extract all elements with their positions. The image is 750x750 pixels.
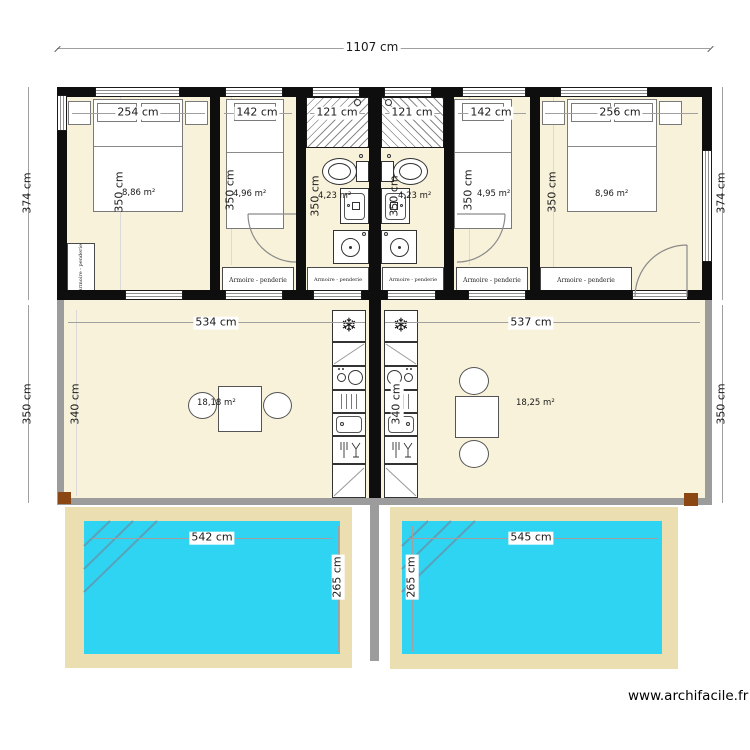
room-area-label[interactable]: 18,18 m²	[197, 398, 236, 408]
dim-label-room-width[interactable]: 256 cm	[597, 107, 642, 120]
dim-label-pool-width[interactable]: 545 cm	[508, 532, 553, 545]
dim-label-side[interactable]: 374 cm	[716, 170, 729, 215]
room-area-label[interactable]: 4,95 m²	[477, 189, 510, 199]
fork-glass-icon	[393, 442, 412, 458]
dim-label-living-width[interactable]: 534 cm	[193, 317, 238, 330]
dim-label-pool-depth[interactable]: 265 cm	[332, 554, 345, 599]
fork-glass-icon	[341, 442, 360, 458]
dim-label-room-width[interactable]: 121 cm	[389, 107, 434, 120]
room-area-label[interactable]: 4,23 m²	[318, 191, 351, 201]
dim-label-room-depth[interactable]: 350 cm	[547, 169, 560, 214]
dim-label-living-depth[interactable]: 340 cm	[391, 381, 404, 426]
dim-label-living-width[interactable]: 537 cm	[508, 317, 553, 330]
room-area-label[interactable]: 4,23 m²	[398, 191, 431, 201]
door-swing[interactable]	[457, 214, 505, 262]
room-area-label[interactable]: 4,96 m²	[233, 189, 266, 199]
door-swing[interactable]	[248, 214, 296, 262]
dim-label-room-depth[interactable]: 350 cm	[463, 167, 476, 212]
room-area-label[interactable]: 18,25 m²	[516, 398, 555, 408]
dim-label-pool-width[interactable]: 542 cm	[189, 532, 234, 545]
dim-label-total-width[interactable]: 1107 cm	[344, 41, 401, 55]
pool-steps-icon	[84, 521, 157, 592]
dim-label-room-width[interactable]: 142 cm	[234, 107, 279, 120]
floor-plan-canvas: Armoire - penderie Armoire - penderie Ar…	[0, 0, 750, 750]
dim-label-room-width[interactable]: 142 cm	[468, 107, 513, 120]
dim-label-living-depth[interactable]: 340 cm	[70, 381, 83, 426]
dim-label-side[interactable]: 350 cm	[22, 381, 35, 426]
counter-mark-icon	[334, 344, 416, 496]
door-swing[interactable]	[635, 245, 687, 297]
watermark: www.archifacile.fr	[628, 688, 748, 704]
dim-label-pool-depth[interactable]: 265 cm	[406, 554, 419, 599]
room-area-label[interactable]: 8,96 m²	[595, 189, 628, 199]
dim-label-side[interactable]: 350 cm	[716, 381, 729, 426]
dim-label-room-width[interactable]: 121 cm	[314, 107, 359, 120]
dim-label-side[interactable]: 374 cm	[22, 170, 35, 215]
dim-label-room-width[interactable]: 254 cm	[115, 107, 160, 120]
room-area-label[interactable]: 8,86 m²	[122, 188, 155, 198]
